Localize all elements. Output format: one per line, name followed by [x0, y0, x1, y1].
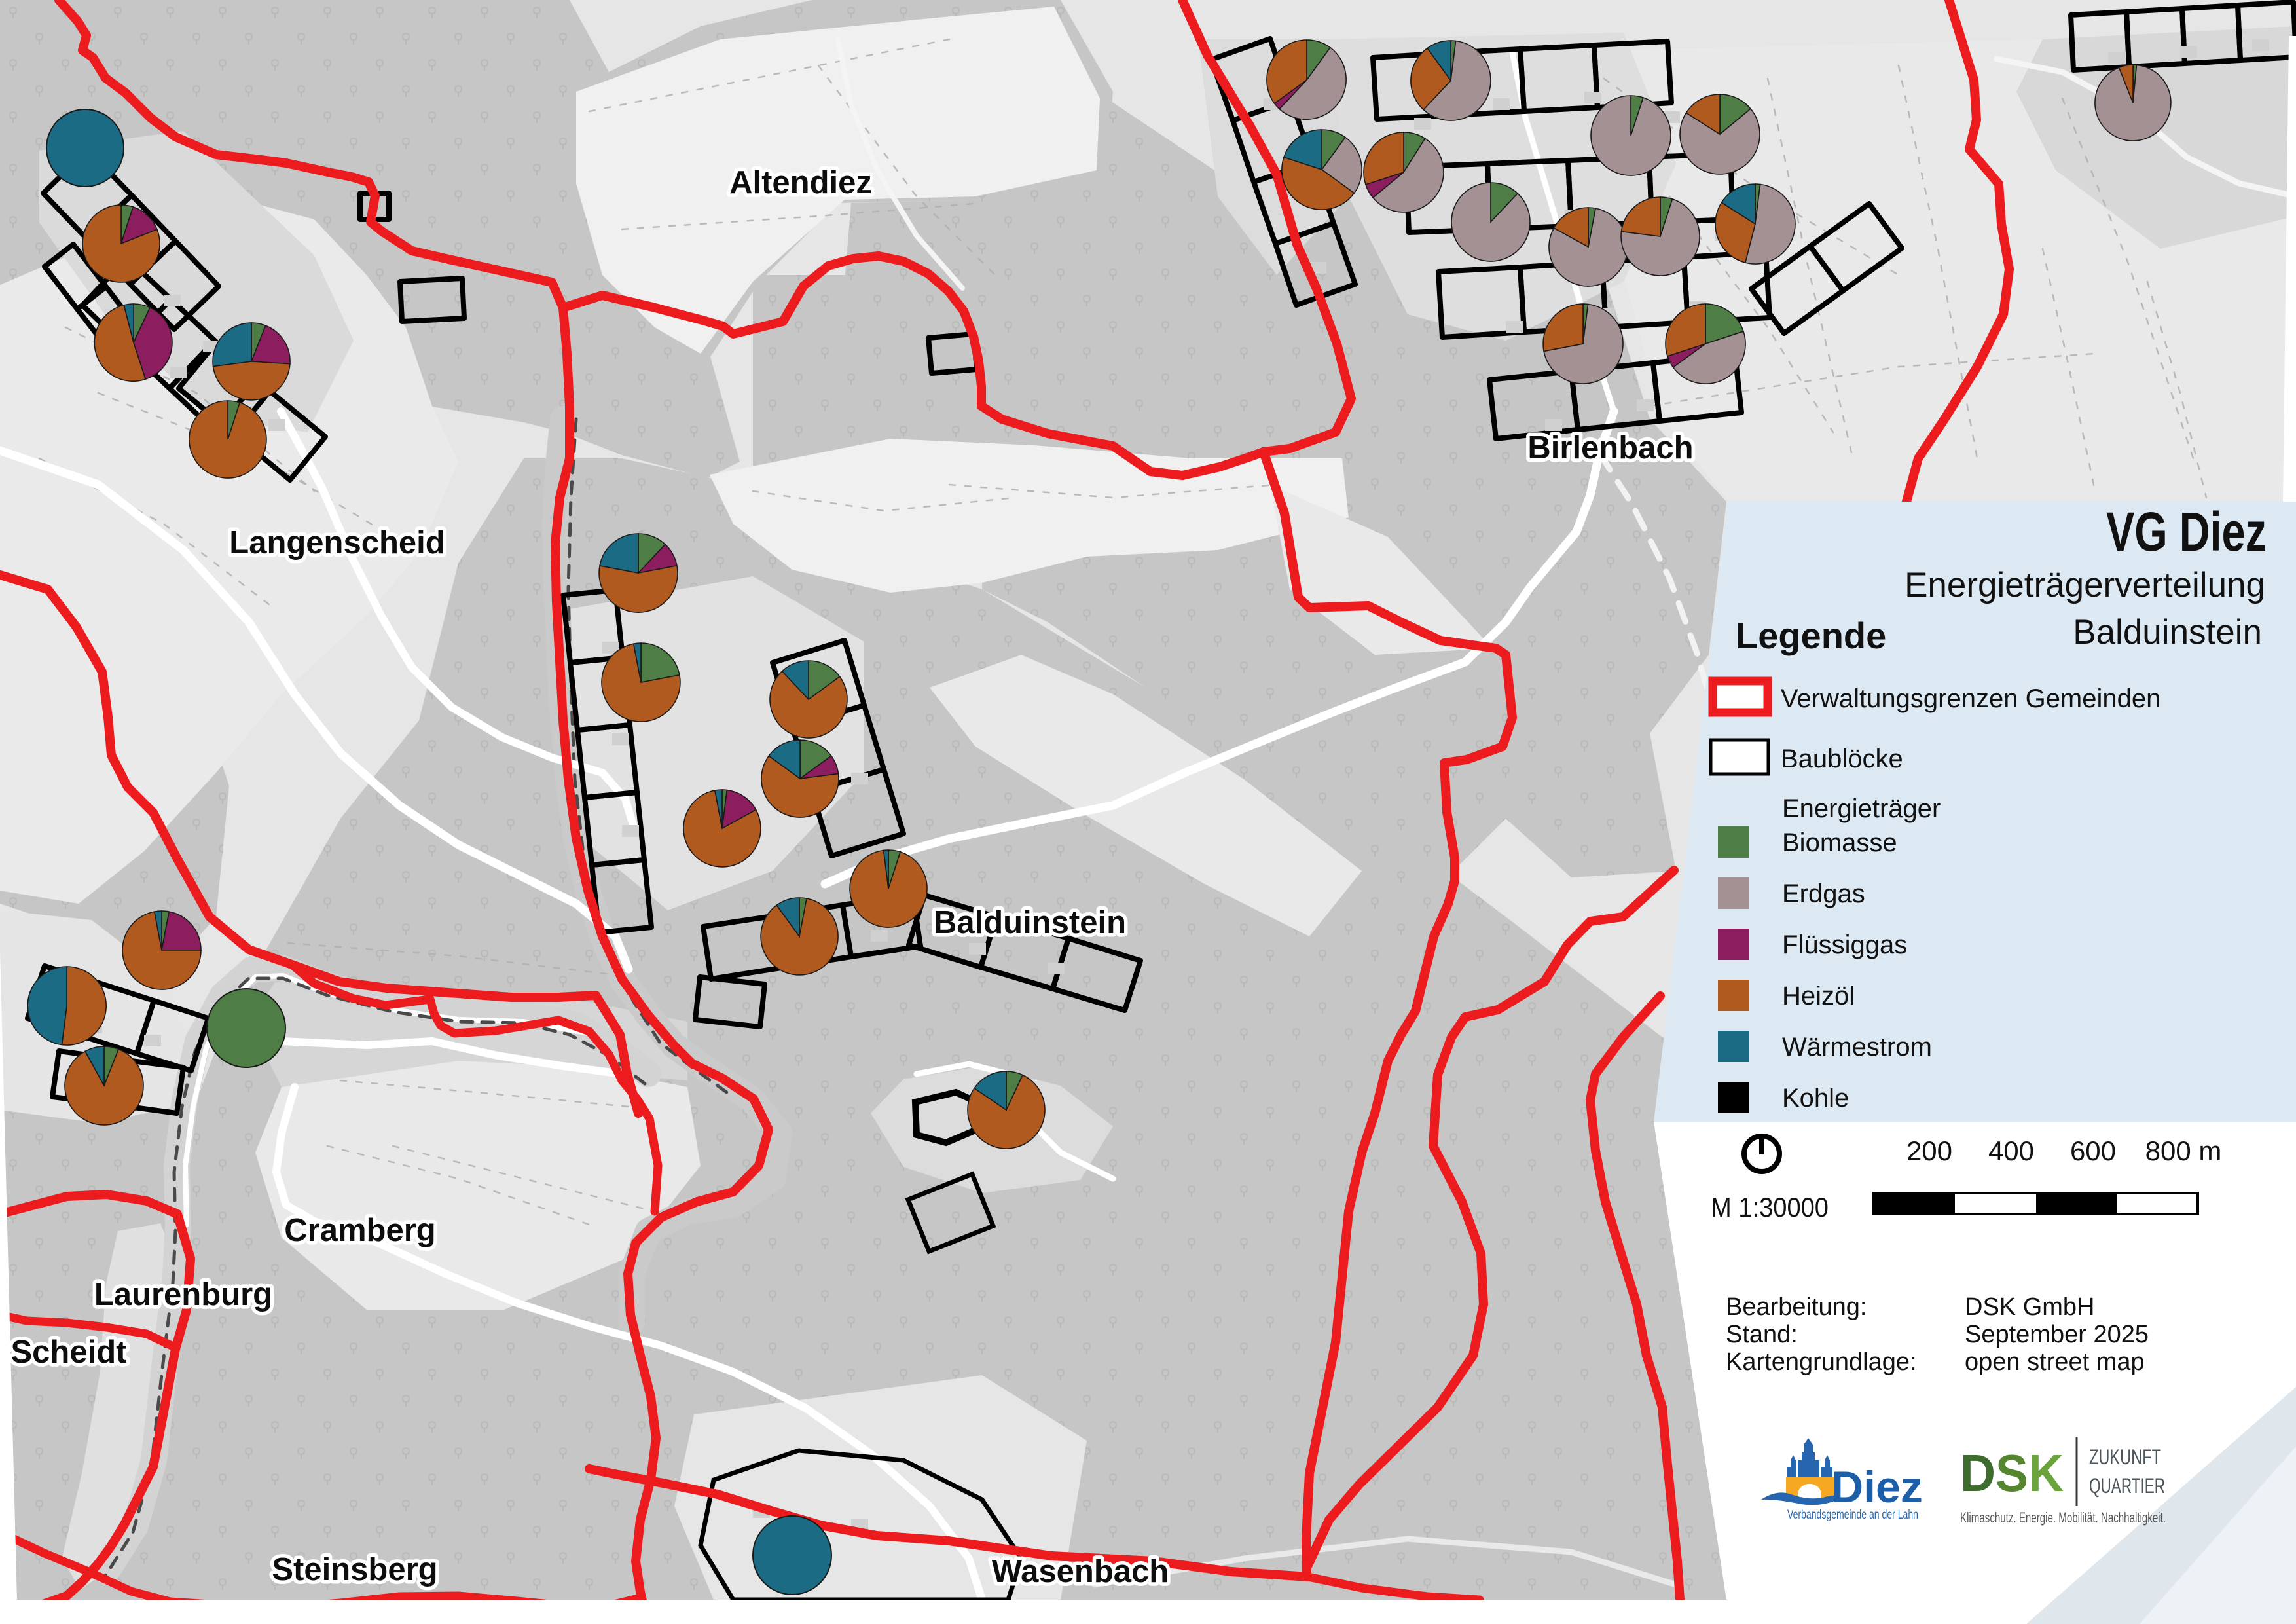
svg-text:Wärmestrom: Wärmestrom [1782, 1033, 1932, 1061]
svg-text:Energieträgerverteilung: Energieträgerverteilung [1904, 566, 2265, 604]
svg-text:Balduinstein: Balduinstein [2073, 613, 2262, 652]
svg-text:QUARTIER: QUARTIER [2089, 1474, 2165, 1498]
svg-text:Wasenbach: Wasenbach [992, 1554, 1169, 1589]
svg-text:600: 600 [2070, 1135, 2116, 1166]
svg-text:Scheidt: Scheidt [11, 1335, 127, 1370]
svg-text:Erdgas: Erdgas [1782, 879, 1865, 908]
svg-text:Steinsberg: Steinsberg [272, 1552, 437, 1587]
svg-text:Energieträger: Energieträger [1782, 794, 1941, 823]
svg-text:Diez: Diez [1831, 1462, 1923, 1512]
svg-text:Klimaschutz. Energie. Mobilitä: Klimaschutz. Energie. Mobilität. Nachhal… [1960, 1509, 2166, 1526]
svg-text:Cramberg: Cramberg [284, 1213, 435, 1248]
svg-text:DSK: DSK [1960, 1444, 2064, 1502]
svg-text:Langenscheid: Langenscheid [229, 525, 445, 561]
svg-text:Verbandsgemeinde an der Lahn: Verbandsgemeinde an der Lahn [1787, 1508, 1918, 1522]
svg-text:Balduinstein: Balduinstein [934, 905, 1126, 940]
svg-text:200: 200 [1906, 1135, 1952, 1166]
svg-text:DSK GmbH: DSK GmbH [1965, 1293, 2094, 1321]
svg-text:Kartengrundlage:: Kartengrundlage: [1726, 1348, 1917, 1376]
svg-text:Biomasse: Biomasse [1782, 828, 1897, 857]
svg-text:ZUKUNFT: ZUKUNFT [2089, 1445, 2161, 1469]
svg-text:800 m: 800 m [2145, 1135, 2222, 1166]
svg-text:Altendiez: Altendiez [729, 165, 872, 200]
svg-text:400: 400 [1988, 1135, 2034, 1166]
svg-text:Legende: Legende [1736, 615, 1886, 656]
svg-text:Birlenbach: Birlenbach [1527, 430, 1693, 466]
svg-text:Heizöl: Heizöl [1782, 982, 1855, 1010]
svg-text:Bearbeitung:: Bearbeitung: [1726, 1293, 1867, 1321]
svg-text:Baublöcke: Baublöcke [1781, 745, 1903, 773]
svg-text:Kohle: Kohle [1782, 1084, 1849, 1113]
svg-text:Verwaltungsgrenzen Gemeinden: Verwaltungsgrenzen Gemeinden [1781, 684, 2160, 713]
svg-text:Stand:: Stand: [1726, 1321, 1798, 1348]
svg-text:M 1:30000: M 1:30000 [1711, 1192, 1829, 1223]
svg-text:Laurenburg: Laurenburg [94, 1277, 272, 1312]
svg-text:VG Diez: VG Diez [2106, 501, 2267, 563]
svg-text:Flüssiggas: Flüssiggas [1782, 931, 1907, 959]
svg-text:open street map: open street map [1965, 1348, 2145, 1376]
svg-text:September 2025: September 2025 [1965, 1321, 2149, 1348]
